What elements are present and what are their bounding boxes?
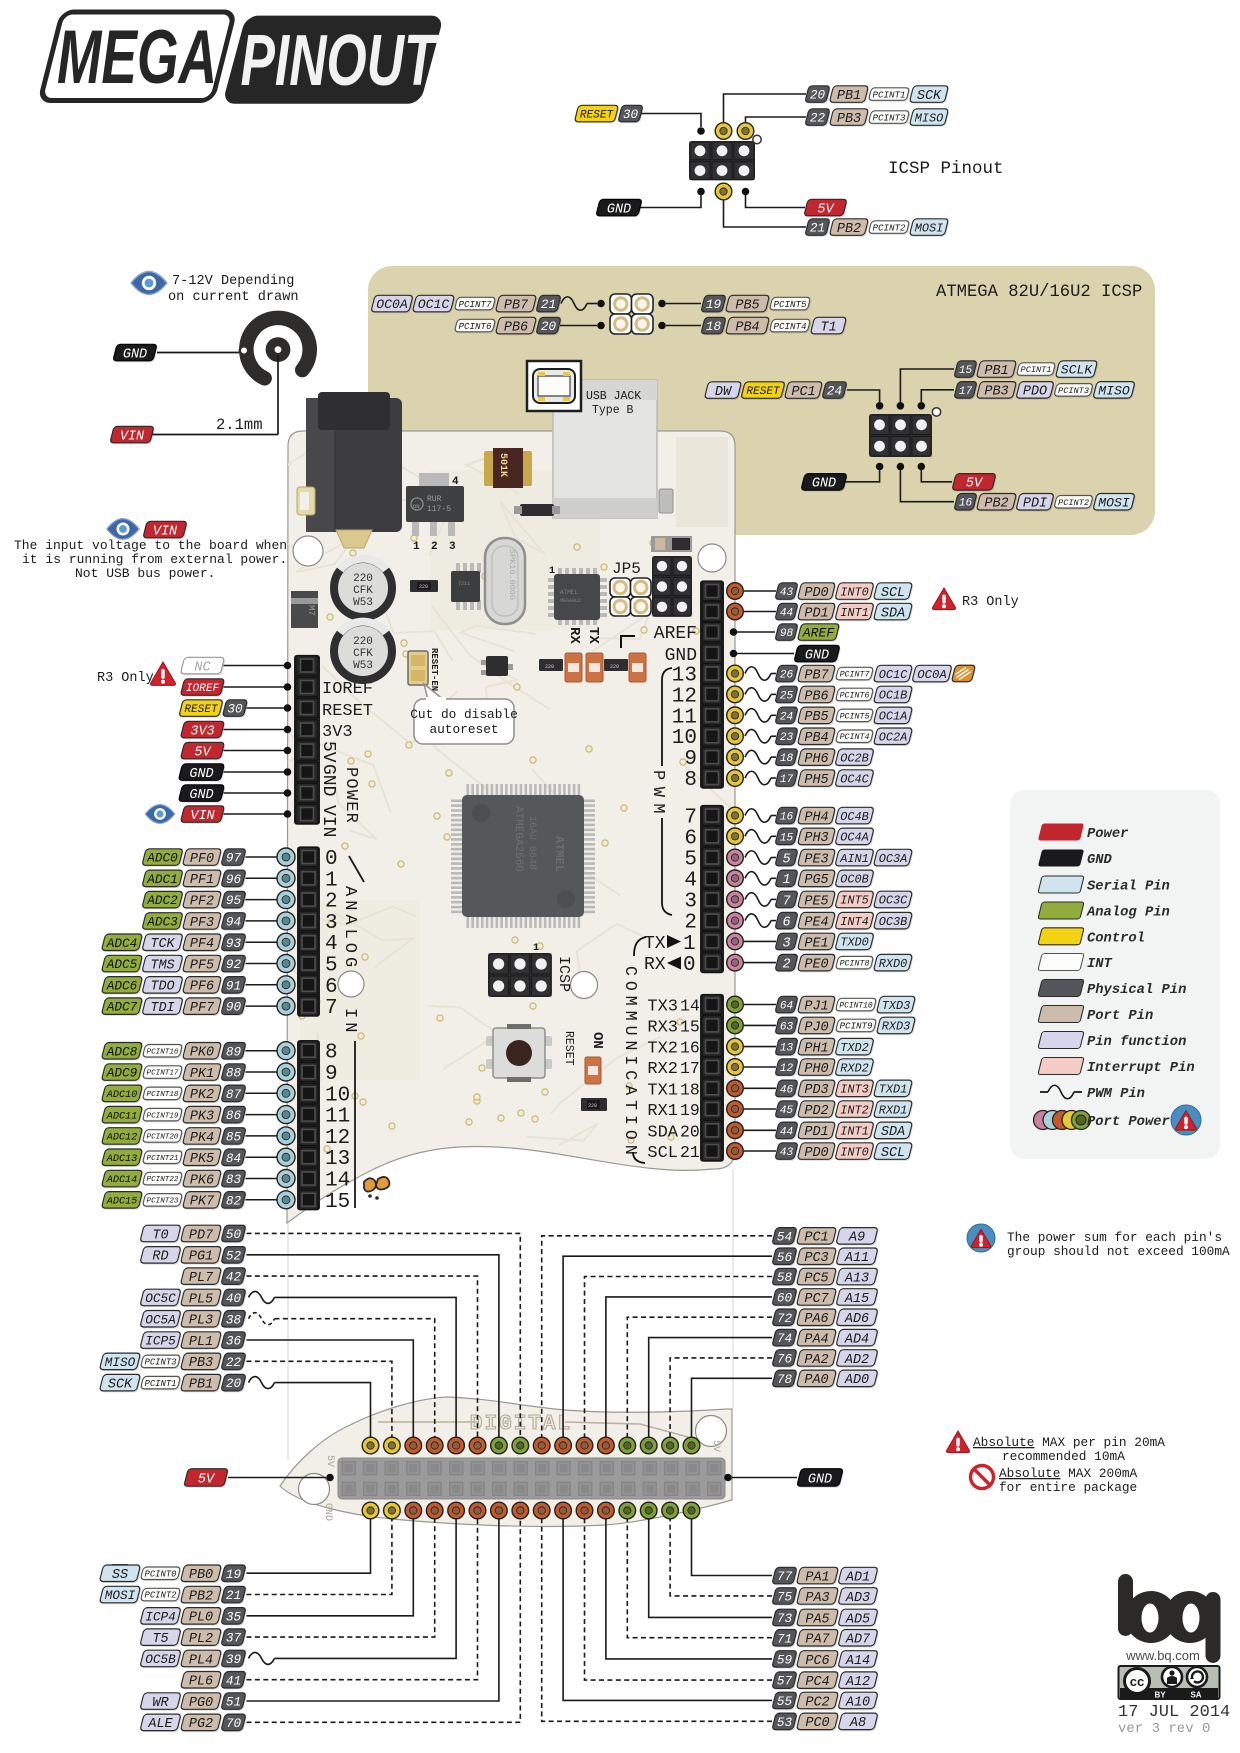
- svg-text:16: 16: [780, 812, 794, 824]
- svg-text:ADC13: ADC13: [106, 1154, 138, 1165]
- svg-text:CFK: CFK: [353, 648, 373, 660]
- svg-text:PINOUT: PINOUT: [241, 21, 440, 101]
- svg-text:NC: NC: [194, 660, 210, 675]
- svg-text:SCK: SCK: [108, 1378, 133, 1393]
- svg-text:GND: GND: [665, 646, 697, 666]
- svg-text:TX2: TX2: [647, 1040, 678, 1059]
- svg-text:PH6: PH6: [804, 752, 828, 767]
- svg-text:PG5: PG5: [804, 873, 828, 888]
- svg-text:PD7: PD7: [189, 1228, 214, 1243]
- svg-text:PCINT18: PCINT18: [147, 1091, 179, 1099]
- svg-text:RX: RX: [644, 955, 666, 975]
- svg-text:1: 1: [782, 873, 790, 888]
- svg-text:AREF: AREF: [654, 624, 697, 644]
- svg-text:46: 46: [780, 1084, 794, 1096]
- svg-text:AD3: AD3: [845, 1591, 870, 1606]
- svg-text:77: 77: [777, 1569, 793, 1584]
- svg-text:PD1: PD1: [804, 606, 828, 621]
- svg-text:OC0A: OC0A: [917, 668, 947, 682]
- svg-text:INT1: INT1: [840, 1125, 869, 1139]
- svg-text:22: 22: [226, 1355, 242, 1370]
- svg-text:15: 15: [680, 1017, 700, 1036]
- svg-text:PA1: PA1: [805, 1570, 829, 1585]
- svg-text:Control: Control: [1087, 930, 1145, 946]
- svg-text:TX: TX: [644, 934, 666, 954]
- svg-text:38: 38: [226, 1312, 242, 1327]
- svg-text:PH4: PH4: [804, 810, 828, 825]
- svg-text:16: 16: [959, 498, 973, 510]
- svg-text:PL4: PL4: [189, 1653, 213, 1668]
- svg-text:INT: INT: [1087, 957, 1113, 972]
- svg-text:MISO: MISO: [915, 111, 944, 125]
- svg-text:OC1C: OC1C: [418, 297, 450, 312]
- svg-text:PB1: PB1: [189, 1378, 213, 1393]
- svg-text:73: 73: [777, 1611, 793, 1626]
- svg-text:POWER: POWER: [341, 767, 360, 824]
- svg-text:PL6: PL6: [189, 1675, 213, 1690]
- svg-text:PB7: PB7: [804, 668, 829, 683]
- svg-text:ADC9: ADC9: [106, 1066, 138, 1081]
- svg-text:RXD1: RXD1: [879, 1103, 908, 1117]
- svg-text:63: 63: [780, 1021, 794, 1033]
- svg-text:7: 7: [684, 807, 697, 830]
- svg-text:PG1: PG1: [189, 1250, 213, 1265]
- svg-text:SCL: SCL: [881, 1146, 905, 1161]
- svg-text:Pin function: Pin function: [1087, 1034, 1186, 1050]
- svg-text:PL0: PL0: [189, 1611, 213, 1626]
- svg-text:PCINT2: PCINT2: [1058, 498, 1089, 508]
- svg-text:ICP5: ICP5: [145, 1334, 176, 1349]
- svg-text:CFK: CFK: [353, 585, 373, 597]
- svg-text:ICSP Pinout: ICSP Pinout: [888, 159, 1004, 179]
- svg-text:2: 2: [325, 891, 338, 914]
- svg-text:PCINT1: PCINT1: [872, 89, 905, 100]
- svg-text:4: 4: [684, 869, 697, 892]
- svg-text:20: 20: [680, 1122, 700, 1141]
- svg-text:M7: M7: [306, 605, 316, 616]
- svg-text:DW: DW: [715, 385, 733, 400]
- svg-text:OC3B: OC3B: [879, 915, 908, 929]
- svg-text:PB6: PB6: [504, 320, 528, 335]
- svg-text:GND: GND: [805, 648, 829, 663]
- svg-text:PD3: PD3: [804, 1083, 828, 1098]
- svg-text:TXD3: TXD3: [882, 999, 911, 1013]
- svg-text:OC2A: OC2A: [879, 731, 908, 745]
- svg-text:PC1: PC1: [804, 1231, 828, 1246]
- svg-text:RXD3: RXD3: [882, 1020, 911, 1034]
- svg-text:PDI: PDI: [1023, 497, 1047, 512]
- svg-text:ADC8: ADC8: [106, 1044, 138, 1059]
- svg-text:85: 85: [226, 1130, 242, 1145]
- svg-text:15: 15: [959, 365, 973, 377]
- svg-text:58: 58: [777, 1270, 793, 1285]
- svg-text:PA3: PA3: [805, 1591, 829, 1606]
- svg-text:5V: 5V: [194, 745, 212, 760]
- svg-text:A8: A8: [849, 1716, 866, 1731]
- svg-text:50: 50: [226, 1227, 242, 1242]
- svg-text:3V3: 3V3: [190, 724, 214, 739]
- svg-text:41: 41: [226, 1673, 241, 1688]
- svg-text:PH1: PH1: [804, 1042, 828, 1057]
- svg-text:MEGA: MEGA: [57, 15, 217, 100]
- svg-text:R3 Only: R3 Only: [97, 671, 154, 686]
- svg-text:GND: GND: [1087, 853, 1113, 868]
- svg-text:RESET: RESET: [746, 386, 781, 398]
- svg-text:14: 14: [680, 997, 700, 1016]
- svg-text:43: 43: [780, 587, 794, 599]
- svg-text:OC5C: OC5C: [145, 1291, 176, 1306]
- svg-text:20: 20: [541, 319, 557, 334]
- svg-text:ADC14: ADC14: [106, 1175, 138, 1186]
- svg-text:INT2: INT2: [840, 1103, 869, 1117]
- svg-text:PC6: PC6: [805, 1654, 829, 1669]
- svg-text:35: 35: [226, 1609, 242, 1624]
- svg-text:MOSI: MOSI: [915, 221, 944, 235]
- svg-text:ADC1: ADC1: [146, 872, 177, 887]
- svg-text:ADC4: ADC4: [106, 936, 137, 951]
- svg-text:AD2: AD2: [844, 1353, 869, 1368]
- svg-text:13: 13: [780, 1043, 794, 1055]
- svg-text:18: 18: [680, 1080, 700, 1099]
- svg-text:PCINT7: PCINT7: [458, 299, 492, 310]
- svg-text:PCINT3: PCINT3: [1058, 386, 1089, 396]
- svg-text:83: 83: [226, 1172, 242, 1187]
- svg-text:INT0: INT0: [840, 585, 869, 599]
- svg-text:93: 93: [226, 936, 242, 951]
- svg-text:OC0B: OC0B: [840, 873, 869, 887]
- svg-text:60: 60: [777, 1291, 793, 1306]
- svg-text:501K: 501K: [497, 453, 508, 477]
- svg-text:PB1: PB1: [837, 89, 861, 104]
- svg-text:PK3: PK3: [190, 1110, 214, 1125]
- svg-text:PCINT4: PCINT4: [840, 733, 870, 742]
- svg-text:51: 51: [226, 1695, 241, 1710]
- svg-text:21: 21: [226, 1588, 241, 1603]
- svg-text:IN: IN: [340, 1008, 359, 1036]
- svg-text:AD4: AD4: [844, 1333, 869, 1348]
- svg-text:3: 3: [325, 912, 338, 935]
- svg-text:Absolute MAX per pin 20mA: Absolute MAX per pin 20mA: [973, 1435, 1165, 1450]
- svg-text:VIN: VIN: [120, 429, 145, 444]
- svg-text:OC4A: OC4A: [840, 831, 869, 845]
- svg-text:25: 25: [780, 690, 794, 702]
- svg-text:2: 2: [684, 912, 697, 935]
- svg-text:220: 220: [419, 584, 428, 590]
- svg-text:220: 220: [610, 664, 619, 670]
- svg-text:PB1: PB1: [984, 364, 1008, 379]
- svg-text:PH5: PH5: [804, 773, 828, 788]
- svg-text:12: 12: [672, 685, 697, 708]
- svg-text:TXD0: TXD0: [840, 936, 869, 950]
- svg-text:PA4: PA4: [804, 1333, 828, 1348]
- svg-text:PF4: PF4: [190, 937, 214, 952]
- svg-text:TX3: TX3: [647, 998, 678, 1017]
- svg-text:76: 76: [777, 1352, 793, 1367]
- svg-text:17: 17: [959, 386, 973, 398]
- svg-text:1: 1: [413, 541, 420, 553]
- svg-text:52: 52: [226, 1248, 242, 1263]
- svg-text:220: 220: [545, 664, 554, 670]
- svg-text:5V: 5V: [318, 741, 338, 763]
- svg-text:95: 95: [226, 893, 242, 908]
- svg-text:PJ1: PJ1: [804, 999, 828, 1014]
- svg-text:10: 10: [672, 727, 697, 750]
- svg-text:OC1B: OC1B: [879, 689, 908, 703]
- svg-text:A11: A11: [844, 1251, 869, 1266]
- svg-text:INT1: INT1: [840, 606, 869, 620]
- svg-text:TCK: TCK: [150, 937, 175, 952]
- svg-text:W53: W53: [353, 597, 373, 609]
- svg-text:PL5: PL5: [189, 1292, 213, 1307]
- svg-text:5: 5: [684, 849, 697, 872]
- svg-text:AD0: AD0: [844, 1373, 869, 1388]
- svg-text:3V3: 3V3: [322, 723, 353, 742]
- svg-text:PG0: PG0: [189, 1696, 213, 1711]
- svg-text:PJ0: PJ0: [804, 1020, 828, 1035]
- svg-text:19: 19: [680, 1101, 700, 1120]
- svg-text:PCINT7: PCINT7: [840, 671, 870, 680]
- svg-text:98: 98: [780, 628, 794, 640]
- svg-text:ADC7: ADC7: [106, 1000, 138, 1015]
- svg-text:PK7: PK7: [190, 1195, 215, 1210]
- svg-text:PL2: PL2: [189, 1632, 213, 1647]
- svg-text:ATMEGA2560: ATMEGA2560: [512, 806, 524, 872]
- svg-text:PB7: PB7: [504, 298, 529, 313]
- svg-text:PCINT9: PCINT9: [839, 1021, 873, 1032]
- svg-text:RXD0: RXD0: [879, 957, 908, 971]
- svg-text:64: 64: [780, 1001, 794, 1013]
- svg-text:MISO: MISO: [105, 1355, 136, 1370]
- svg-text:23: 23: [780, 732, 794, 744]
- svg-text:RX1: RX1: [647, 1102, 678, 1121]
- svg-text:PC7: PC7: [804, 1292, 829, 1307]
- svg-text:5V: 5V: [710, 1440, 721, 1452]
- svg-text:17 JUL 2014: 17 JUL 2014: [1118, 1703, 1230, 1722]
- svg-text:PB5: PB5: [735, 298, 759, 313]
- svg-text:17: 17: [780, 774, 794, 786]
- svg-text:PF6: PF6: [190, 980, 214, 995]
- svg-text:INT5: INT5: [840, 894, 869, 908]
- svg-text:PB4: PB4: [804, 731, 828, 746]
- svg-text:40: 40: [226, 1291, 242, 1306]
- svg-text:92: 92: [226, 957, 242, 972]
- svg-text:MEGA8U2: MEGA8U2: [560, 598, 581, 604]
- svg-text:PB6: PB6: [804, 689, 828, 704]
- svg-text:PK6: PK6: [190, 1173, 214, 1188]
- svg-text:OC0A: OC0A: [376, 297, 408, 312]
- svg-text:PK1: PK1: [190, 1067, 214, 1082]
- svg-text:PC2: PC2: [805, 1695, 829, 1710]
- svg-text:5V: 5V: [817, 202, 835, 217]
- svg-text:15: 15: [325, 1191, 350, 1214]
- svg-text:PE3: PE3: [804, 852, 828, 867]
- svg-text:24: 24: [827, 384, 842, 399]
- svg-text:117-5: 117-5: [427, 505, 451, 514]
- svg-text:75: 75: [777, 1590, 793, 1605]
- svg-text:OC1C: OC1C: [879, 668, 908, 682]
- svg-text:0: 0: [325, 848, 338, 871]
- svg-text:MISO: MISO: [1098, 384, 1130, 399]
- svg-text:PA7: PA7: [805, 1633, 830, 1648]
- svg-text:on current drawn: on current drawn: [168, 290, 299, 305]
- svg-text:AD1: AD1: [845, 1570, 870, 1585]
- svg-text:OC4C: OC4C: [840, 772, 869, 786]
- svg-text:RXD2: RXD2: [840, 1061, 869, 1075]
- svg-text:PCINT6: PCINT6: [458, 321, 492, 332]
- svg-text:PD1: PD1: [804, 1125, 828, 1140]
- svg-text:44: 44: [780, 608, 794, 620]
- svg-text:PB2: PB2: [984, 497, 1008, 512]
- svg-text:it is running from external po: it is running from external power.: [22, 552, 287, 567]
- svg-text:A15: A15: [844, 1292, 869, 1307]
- svg-text:T5: T5: [152, 1632, 168, 1647]
- svg-text:7: 7: [325, 997, 338, 1020]
- svg-text:PF3: PF3: [190, 916, 214, 931]
- svg-text:GND: GND: [808, 1472, 832, 1487]
- svg-text:1: 1: [533, 943, 539, 954]
- svg-text:cc: cc: [1130, 1674, 1144, 1689]
- svg-text:PE0: PE0: [804, 958, 828, 973]
- svg-text:ADC10: ADC10: [106, 1090, 138, 1101]
- svg-text:PC1: PC1: [791, 385, 815, 400]
- svg-text:OC3C: OC3C: [879, 894, 908, 908]
- svg-text:12: 12: [325, 1127, 350, 1150]
- svg-text:OC3A: OC3A: [879, 852, 908, 866]
- svg-text:72: 72: [777, 1311, 793, 1326]
- svg-text:PF0: PF0: [190, 852, 214, 867]
- svg-text:SCK: SCK: [917, 89, 942, 104]
- svg-text:PDO: PDO: [1023, 385, 1047, 400]
- svg-text:PCINT0: PCINT0: [145, 1569, 178, 1579]
- svg-text:PD0: PD0: [804, 1146, 828, 1161]
- svg-text:GND: GND: [189, 788, 213, 803]
- svg-text:ver 3 rev 0: ver 3 rev 0: [1118, 1721, 1210, 1737]
- svg-text:PD2: PD2: [804, 1104, 828, 1119]
- svg-text:PK4: PK4: [190, 1131, 214, 1146]
- svg-text:PF7: PF7: [190, 1001, 215, 1016]
- svg-text:GND: GND: [812, 477, 836, 492]
- svg-text:PCINT1: PCINT1: [1021, 365, 1052, 375]
- svg-text:GND: GND: [123, 347, 147, 362]
- svg-text:6: 6: [325, 976, 338, 999]
- svg-text:GND: GND: [318, 764, 338, 796]
- svg-text:13: 13: [672, 665, 697, 688]
- svg-text:82: 82: [226, 1193, 242, 1208]
- svg-text:USB JACK: USB JACK: [586, 390, 641, 403]
- svg-text:PB3: PB3: [984, 385, 1008, 400]
- svg-text:11: 11: [672, 706, 697, 729]
- svg-text:PCINT3: PCINT3: [872, 112, 906, 123]
- svg-text:ADC12: ADC12: [106, 1133, 138, 1144]
- svg-text:ALE: ALE: [147, 1717, 173, 1732]
- svg-text:5V: 5V: [966, 477, 984, 492]
- svg-text:22: 22: [810, 111, 826, 126]
- svg-text:PCINT5: PCINT5: [773, 299, 807, 310]
- svg-text:97: 97: [226, 851, 242, 866]
- svg-text:SDA: SDA: [881, 1125, 905, 1140]
- svg-text:4: 4: [325, 933, 338, 956]
- svg-text:PC0: PC0: [805, 1716, 829, 1731]
- svg-text:PL7: PL7: [189, 1271, 214, 1286]
- svg-text:ATMEL: ATMEL: [552, 836, 566, 872]
- svg-text:PCINT2: PCINT2: [872, 222, 906, 233]
- svg-text:GND: GND: [607, 202, 631, 217]
- svg-text:Physical Pin: Physical Pin: [1087, 982, 1186, 998]
- svg-text:PF1: PF1: [190, 873, 214, 888]
- svg-text:8: 8: [325, 1042, 338, 1065]
- svg-text:A10: A10: [845, 1695, 870, 1710]
- svg-text:PCINT1: PCINT1: [145, 1379, 177, 1389]
- svg-text:13: 13: [325, 1148, 350, 1171]
- svg-text:Port Pin: Port Pin: [1087, 1008, 1153, 1024]
- svg-text:PCINT8: PCINT8: [840, 960, 870, 969]
- svg-text:TXD2: TXD2: [840, 1041, 869, 1055]
- svg-text:45: 45: [780, 1105, 794, 1117]
- svg-text:71: 71: [777, 1631, 792, 1646]
- svg-text:5V: 5V: [324, 1455, 335, 1467]
- svg-text:89: 89: [226, 1044, 242, 1059]
- svg-text:94: 94: [226, 915, 241, 930]
- svg-text:A14: A14: [845, 1654, 870, 1669]
- svg-text:Absolute MAX 200mA: Absolute MAX 200mA: [999, 1466, 1138, 1481]
- svg-text:17: 17: [680, 1059, 700, 1078]
- svg-text:86: 86: [226, 1108, 242, 1123]
- svg-text:26: 26: [780, 670, 794, 682]
- svg-text:1: 1: [325, 869, 338, 892]
- svg-text:RX: RX: [566, 627, 582, 644]
- svg-text:PE1: PE1: [804, 936, 828, 951]
- svg-text:ADC6: ADC6: [106, 978, 138, 993]
- svg-text:T1: T1: [820, 320, 836, 335]
- svg-text:7211: 7211: [458, 581, 470, 587]
- svg-text:PB3: PB3: [837, 112, 861, 127]
- svg-text:6: 6: [684, 827, 697, 850]
- svg-text:INT0: INT0: [840, 1145, 869, 1159]
- svg-text:RUR: RUR: [427, 495, 442, 504]
- svg-text:VIN: VIN: [190, 809, 215, 824]
- svg-text:A9: A9: [848, 1231, 865, 1246]
- svg-text:220: 220: [353, 573, 373, 585]
- svg-text:15: 15: [780, 832, 794, 844]
- svg-text:MOSI: MOSI: [105, 1588, 136, 1603]
- svg-text:84: 84: [226, 1151, 241, 1166]
- svg-text:TX: TX: [585, 627, 601, 644]
- svg-text:PH3: PH3: [804, 831, 828, 846]
- svg-text:20: 20: [810, 88, 826, 103]
- svg-text:IOREF: IOREF: [186, 683, 220, 695]
- svg-text:PG2: PG2: [189, 1717, 213, 1732]
- svg-text:AD7: AD7: [845, 1633, 871, 1648]
- svg-text:INT3: INT3: [840, 1083, 869, 1097]
- svg-text:OC2B: OC2B: [840, 751, 869, 765]
- svg-text:220: 220: [353, 636, 373, 648]
- svg-text:OC1A: OC1A: [879, 710, 908, 724]
- svg-text:44: 44: [780, 1126, 794, 1138]
- svg-text:RX2: RX2: [647, 1060, 678, 1079]
- svg-text:19: 19: [706, 297, 722, 312]
- svg-text:AD6: AD6: [844, 1312, 869, 1327]
- svg-text:2: 2: [782, 958, 790, 973]
- svg-text:OC4B: OC4B: [840, 810, 869, 824]
- svg-text:PCINT16: PCINT16: [147, 1048, 179, 1056]
- svg-text:PB2: PB2: [837, 222, 861, 237]
- svg-text:ICSP: ICSP: [555, 956, 572, 992]
- svg-text:3: 3: [782, 936, 790, 951]
- svg-text:3: 3: [449, 541, 456, 553]
- svg-text:ADC2: ADC2: [146, 893, 178, 908]
- svg-text:12: 12: [780, 1063, 794, 1075]
- svg-text:PCINT3: PCINT3: [145, 1358, 178, 1368]
